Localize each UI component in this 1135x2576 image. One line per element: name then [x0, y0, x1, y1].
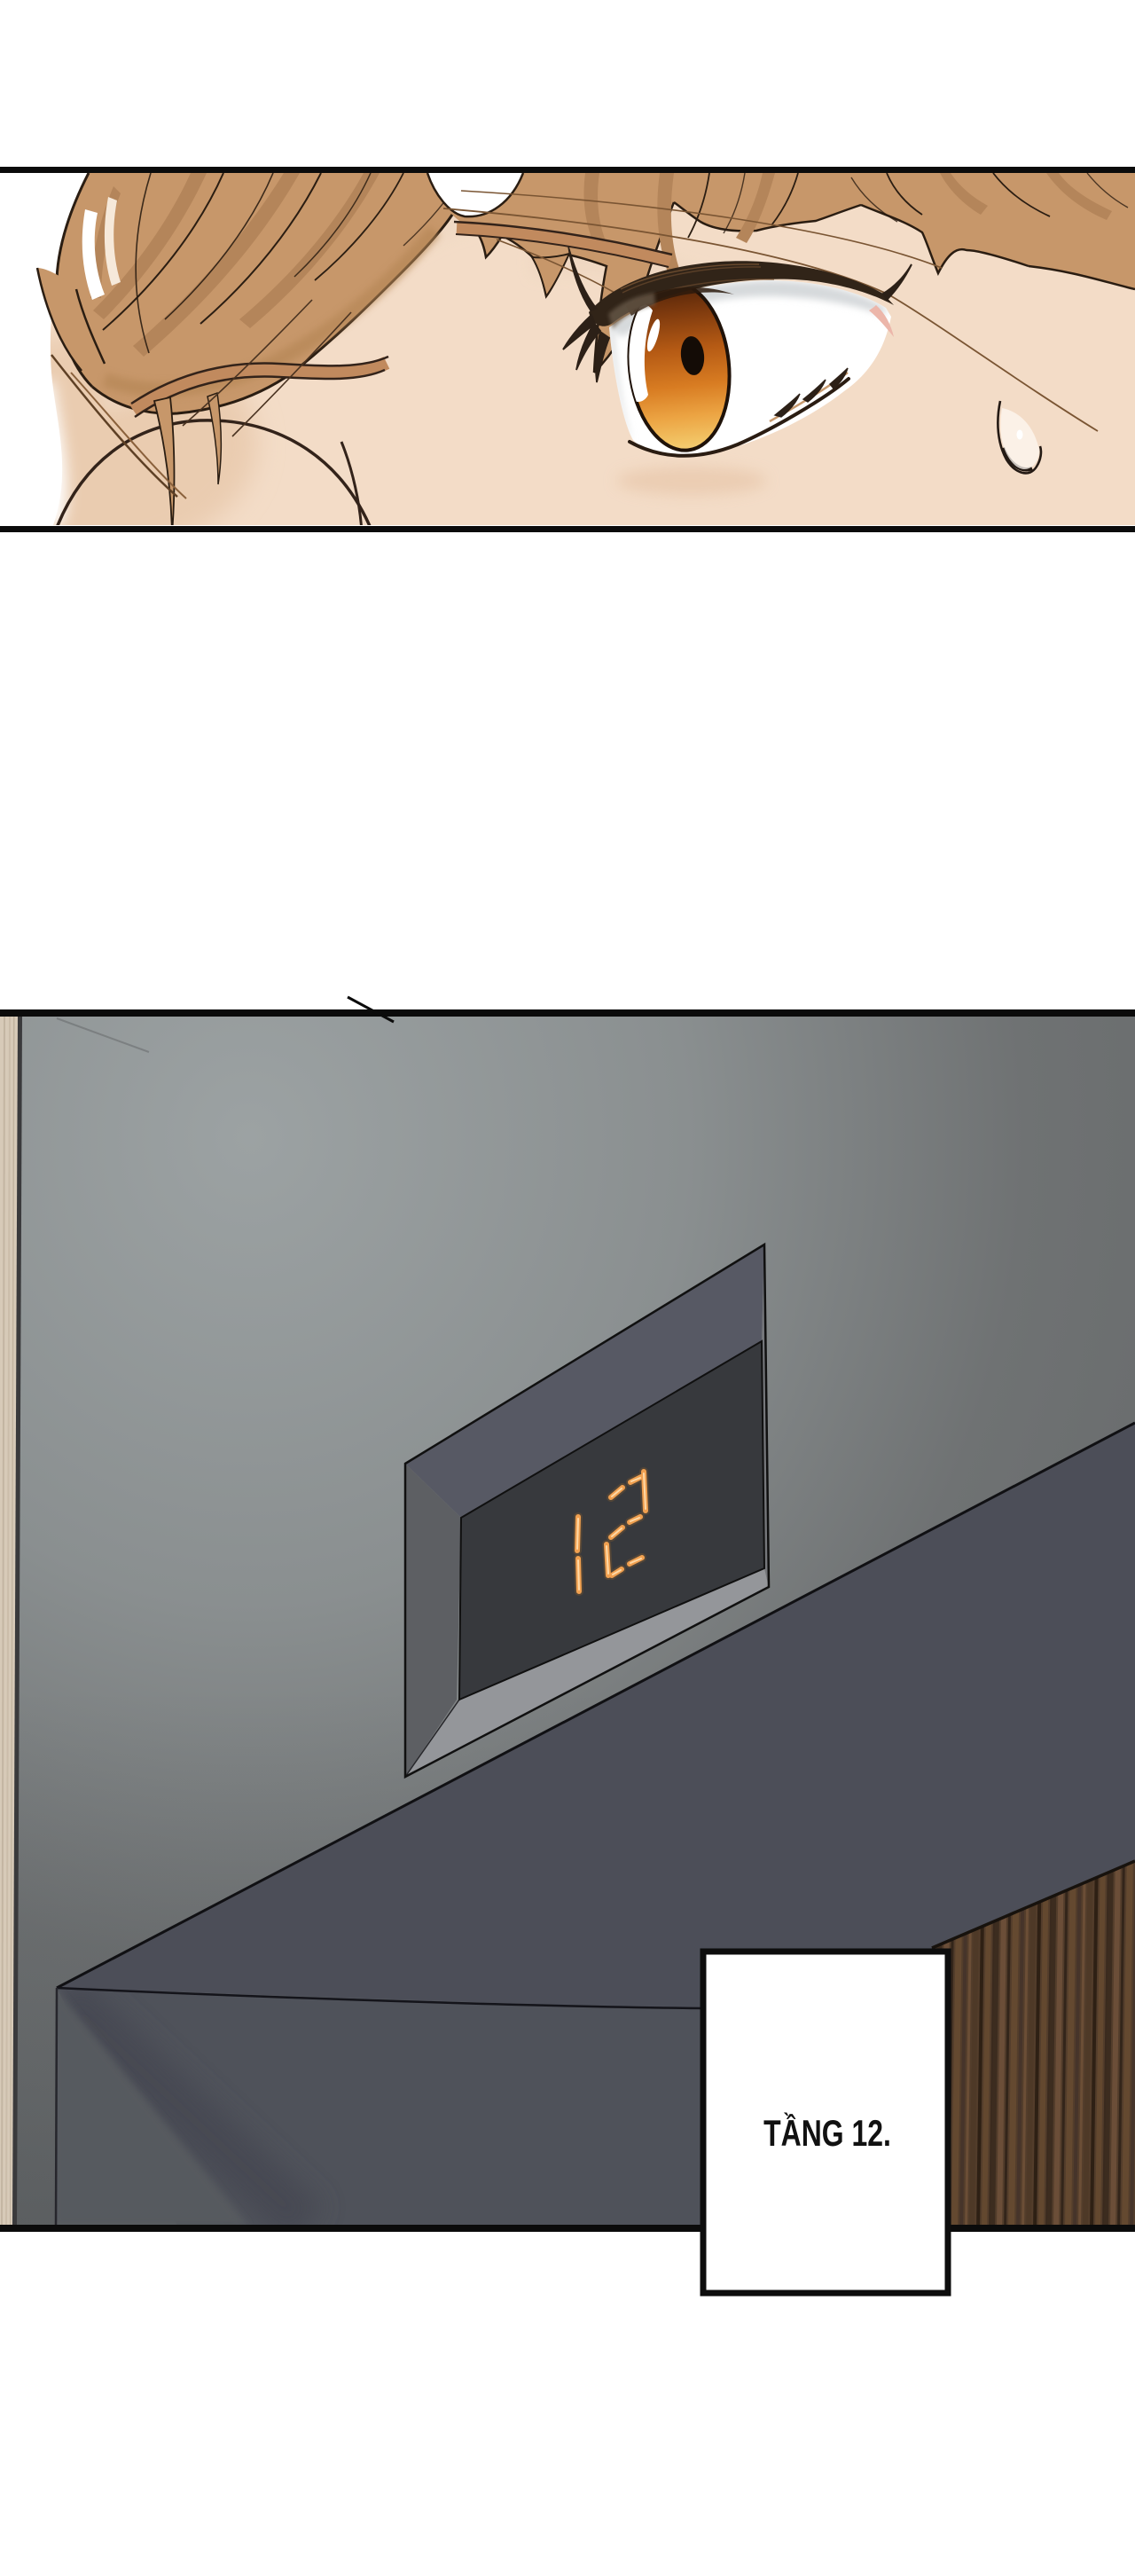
svg-text:TẦNG 12.: TẦNG 12. [763, 2112, 891, 2154]
